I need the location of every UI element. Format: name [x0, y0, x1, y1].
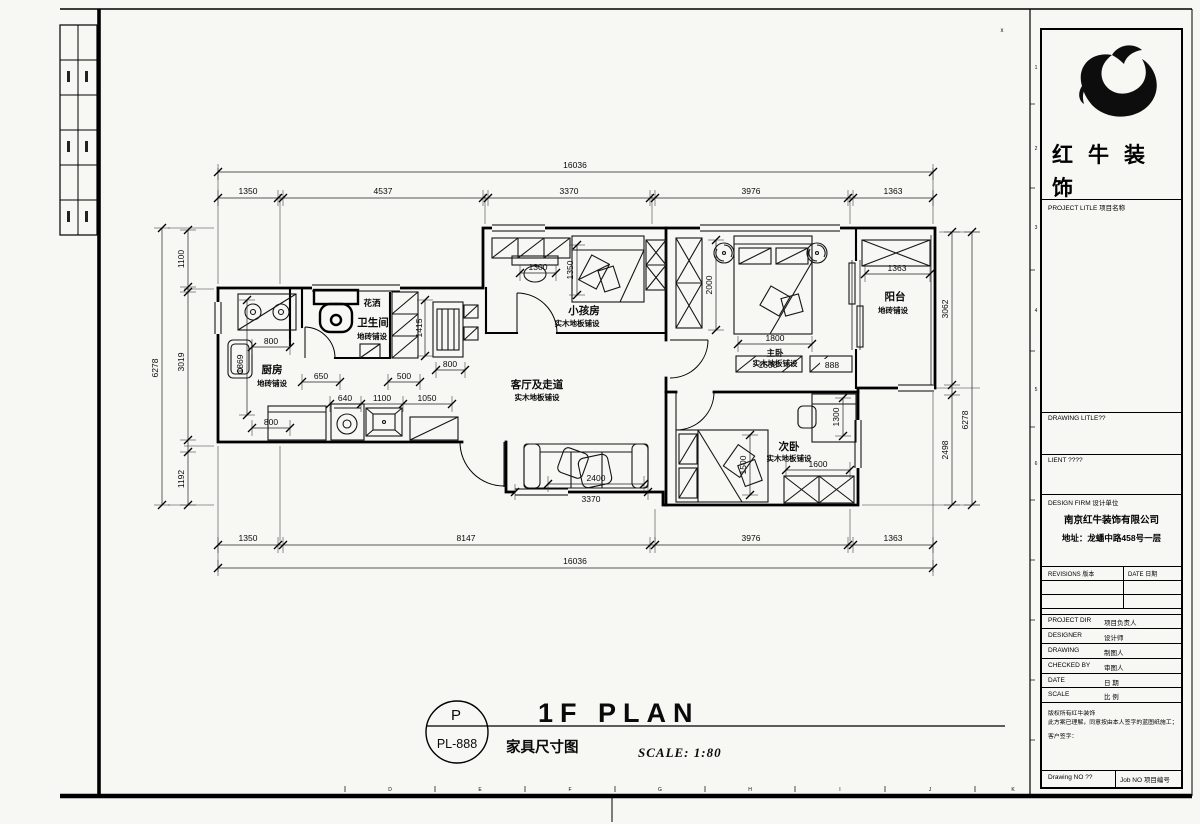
- corner-mark: x: [1001, 28, 1004, 34]
- design-firm-address: 地址：龙蟠中路458号一层: [1042, 532, 1181, 544]
- kids-room-door: [517, 293, 557, 333]
- dim-counter-1050: 1050: [418, 393, 437, 403]
- toilet: [314, 290, 358, 332]
- room-labels: 厨房 地砖铺设 花洒 卫生间 地砖铺设 小孩房 实木地板铺设 客厅及走道 实木地…: [257, 290, 908, 463]
- divider: [1042, 454, 1181, 455]
- divider: [1042, 614, 1181, 615]
- date-row-cn: 日 期: [1104, 677, 1119, 687]
- dim-living-3370: 3370: [582, 494, 601, 504]
- designer-label: DESIGNER: [1048, 632, 1082, 639]
- scale-row-cn: 比 例: [1104, 691, 1119, 701]
- room-kitchen-floor: 地砖铺设: [257, 378, 287, 388]
- dim-counter-1100: 1100: [373, 393, 392, 403]
- second-bedroom-door: [676, 392, 714, 430]
- dim-left-total: 6278: [150, 358, 160, 377]
- dim-right-2: 2498: [940, 440, 950, 459]
- dim-entry-650: 650: [314, 371, 328, 381]
- window-balcony-bottom: [898, 384, 934, 392]
- grid-number: 3: [1035, 225, 1038, 231]
- footer-plan-subtitle: 家具尺寸图: [506, 738, 579, 756]
- dim-counter-640: 640: [338, 393, 352, 403]
- company-name: 红牛装饰: [1052, 140, 1178, 205]
- footer-drawing-code: PL-888: [437, 737, 477, 751]
- room-living-label: 客厅及走道: [510, 378, 564, 391]
- dim-second-1300: 1300: [831, 407, 841, 426]
- grid-letter: J: [929, 787, 932, 793]
- counter-board: [410, 417, 458, 440]
- project-dir-cn: 项目负责人: [1104, 617, 1137, 627]
- project-dir-label: PROJECT DIR: [1048, 617, 1091, 624]
- divider: [1042, 199, 1181, 200]
- project-title-label: PROJECT LITLE 项目名称: [1048, 202, 1125, 212]
- dim-top-total: 16036: [563, 160, 587, 170]
- dim-kids-1300: 1300: [529, 262, 548, 272]
- job-no-label: Job NO 项目编号: [1120, 774, 1170, 784]
- checked-by-cn: 审图人: [1104, 662, 1124, 672]
- master-door: [670, 340, 708, 378]
- drawing-by-cn: 制图人: [1104, 647, 1124, 657]
- dim-kitchen-1869: 1869: [235, 354, 245, 373]
- revisions-label: REVISIONS 版本: [1048, 569, 1094, 578]
- dim-bottom-3: 3976: [742, 533, 761, 543]
- dim-second-1500: 1500: [738, 455, 748, 474]
- grid-number: 4: [1035, 308, 1038, 314]
- floor-plan-canvas: D E F G H I J K 1 2 3 4 5 6 x: [0, 0, 1200, 824]
- room-second-floor: 实木地板铺设: [767, 453, 812, 463]
- dim-left-2: 3019: [176, 352, 186, 371]
- window-kids-top: [492, 224, 545, 232]
- footer-circle-letter: P: [451, 707, 461, 724]
- grid-letter: E: [478, 787, 482, 793]
- shower-tray: [360, 344, 380, 358]
- dim-top-2: 4537: [374, 186, 393, 196]
- date-row-label: DATE: [1048, 677, 1065, 684]
- grid-letter: I: [839, 787, 840, 793]
- room-second-label: 次卧: [779, 440, 800, 453]
- divider: [1042, 770, 1181, 771]
- room-master-floor: 实木地板铺设: [753, 358, 798, 368]
- dim-living-2400: 2400: [587, 473, 606, 483]
- divider: [1042, 580, 1181, 581]
- room-kitchen-label: 厨房: [262, 363, 283, 376]
- copyright-line1: 版权所有红牛装饰: [1048, 708, 1178, 717]
- kids-closet: [492, 238, 570, 258]
- title-block: 红牛装饰 PROJECT LITLE 项目名称 DRAWING LITLE?? …: [1040, 28, 1183, 789]
- grid-reference-letters: D E F G H I J K: [345, 786, 1015, 793]
- room-balcony-label: 阳台: [885, 290, 906, 303]
- kids-wardrobe: [646, 240, 666, 290]
- dim-balcony-1363: 1363: [888, 263, 907, 273]
- dim-bottom-2: 8147: [457, 533, 476, 543]
- grid-letter: D: [388, 787, 392, 793]
- washing-machine: [331, 404, 364, 440]
- dim-top-4: 3976: [742, 186, 761, 196]
- hall-bench: [433, 302, 478, 357]
- divider: [1042, 643, 1181, 644]
- company-logo: [1066, 44, 1166, 136]
- window-master-top: [700, 224, 840, 232]
- room-living-floor: 实木地板铺设: [515, 392, 560, 402]
- grid-number: 1: [1035, 65, 1038, 71]
- master-bed: [734, 236, 812, 334]
- second-wardrobe: [784, 476, 854, 503]
- room-balcony-floor: 地砖铺设: [878, 305, 908, 315]
- ceiling-fan-icon: [714, 243, 734, 263]
- drawing-by-label: DRAWING: [1048, 647, 1079, 654]
- grid-letter: F: [568, 787, 571, 793]
- design-firm-name: 南京红牛装饰有限公司: [1042, 512, 1181, 526]
- grid-letter: H: [748, 787, 752, 793]
- grid-letter: G: [658, 787, 662, 793]
- kids-bed: [572, 236, 644, 302]
- grid-number: 2: [1035, 146, 1038, 152]
- ceiling-fan-icon: [807, 243, 827, 263]
- dim-top-5: 1363: [884, 186, 903, 196]
- drawing-no-label: Drawing NO ??: [1048, 774, 1092, 781]
- drawing-title-label: DRAWING LITLE??: [1048, 415, 1106, 422]
- dim-kids-1350: 1350: [565, 260, 575, 279]
- bottom-divider: [1115, 770, 1116, 789]
- entrance-door: [460, 442, 504, 487]
- room-bath-floor: 地砖铺设: [357, 331, 387, 341]
- dim-bottom-1: 1350: [239, 533, 258, 543]
- laundry-sink: [366, 408, 402, 436]
- footer-scale: SCALE: 1:80: [638, 745, 722, 760]
- divider: [1042, 566, 1181, 567]
- dim-left-1: 1100: [176, 250, 186, 269]
- divider: [1042, 608, 1181, 609]
- room-kids-floor: 实木地板铺设: [555, 318, 600, 328]
- divider: [1042, 673, 1181, 674]
- designer-cn: 设计师: [1104, 632, 1124, 642]
- grid-number: 5: [1035, 387, 1038, 393]
- dim-entry-1415: 1415: [414, 318, 424, 337]
- dim-master-1800: 1800: [766, 333, 785, 343]
- footer-plan-title: 1F PLAN: [538, 698, 700, 728]
- divider: [1042, 494, 1181, 495]
- drawing-sheet: D E F G H I J K 1 2 3 4 5 6 x: [0, 0, 1200, 824]
- window-living-bottom: [515, 488, 568, 496]
- grid-number: 6: [1035, 461, 1038, 467]
- divider: [1042, 687, 1181, 688]
- grid-letter: K: [1011, 787, 1015, 793]
- room-master-label: 主卧: [766, 348, 784, 358]
- scale-row-label: SCALE: [1048, 691, 1069, 698]
- design-firm-label: DESIGN FIRM 设计单位: [1048, 497, 1118, 507]
- dim-top-3: 3370: [560, 186, 579, 196]
- room-bath-label: 卫生间: [357, 316, 389, 329]
- master-wardrobe: [676, 238, 702, 328]
- dim-bottom-4: 1363: [884, 533, 903, 543]
- divider: [1042, 412, 1181, 413]
- margin-strip: [60, 25, 97, 235]
- revisions-divider: [1123, 566, 1124, 608]
- copyright-line2: 此方案已理解，同意按由本人签字的蓝图纸施工；: [1048, 717, 1178, 726]
- dim-top-1: 1350: [239, 186, 258, 196]
- date-column-label: DATE 日期: [1128, 569, 1157, 578]
- dim-entry-500: 500: [397, 371, 411, 381]
- divider: [1042, 658, 1181, 659]
- divider: [1042, 702, 1181, 703]
- dim-bottom-total: 16036: [563, 556, 587, 566]
- divider: [1042, 594, 1181, 595]
- checked-by-label: CHECKED BY: [1048, 662, 1090, 669]
- client-signature-label: 客户签字：: [1048, 731, 1178, 740]
- client-label: LIENT ????: [1048, 457, 1083, 464]
- window-second-right: [854, 420, 862, 468]
- window-kitchen-left: [214, 302, 222, 334]
- dim-master-2000: 2000: [704, 275, 714, 294]
- dim-kitchen-800b: 800: [264, 417, 278, 427]
- dim-kitchen-800a: 800: [264, 336, 278, 346]
- drawing-title-footer: P PL-888 1F PLAN 家具尺寸图 SCALE: 1:80: [426, 698, 1005, 763]
- dim-right-total: 6278: [960, 410, 970, 429]
- room-kids-label: 小孩房: [567, 304, 600, 317]
- shower-label: 花洒: [363, 298, 381, 308]
- second-desk: [798, 394, 856, 442]
- divider: [1042, 628, 1181, 629]
- dim-entry-800: 800: [443, 359, 457, 369]
- dim-left-3: 1192: [176, 470, 186, 489]
- dim-right-1: 3062: [940, 299, 950, 318]
- dim-master-888: 888: [825, 360, 839, 370]
- grid-reference-numbers: 1 2 3 4 5 6: [1030, 65, 1038, 740]
